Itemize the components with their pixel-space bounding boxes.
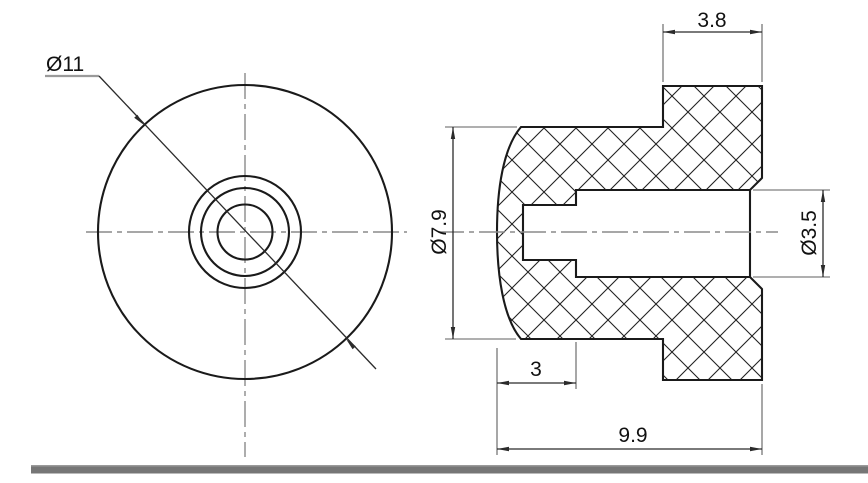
arrowhead (346, 339, 356, 349)
dim-hole-depth-label: 3 (530, 358, 542, 381)
front-view-centerlines (86, 73, 407, 457)
bottom-bar-body (31, 467, 868, 474)
dim-hole-diameter-label: Ø3.5 (798, 210, 821, 256)
arrowhead (451, 327, 455, 339)
engineering-drawing: Ø11 (0, 0, 868, 483)
arrowhead (821, 190, 825, 202)
arrowhead (134, 115, 144, 125)
section-view: 3.8 Ø7.9 Ø3.5 3 9.9 (428, 9, 830, 455)
arrowhead (663, 30, 675, 34)
bottom-bar-highlight (31, 465, 868, 467)
arrowhead (750, 447, 762, 451)
dim-outer-diameter: Ø11 (45, 53, 376, 369)
arrowhead (821, 265, 825, 277)
section-material-hatch (497, 86, 762, 380)
dim-outer-diameter-label: Ø11 (46, 53, 84, 76)
arrowhead (451, 127, 455, 139)
dim-body-diameter-label: Ø7.9 (428, 209, 451, 255)
drawing-page: Ø11 (0, 0, 868, 483)
bottom-bar (31, 465, 868, 474)
dim-flange-width-label: 3.8 (697, 9, 726, 32)
arrowhead (564, 381, 576, 385)
arrowhead (497, 381, 509, 385)
arrowhead (750, 30, 762, 34)
dim-overall-length-label: 9.9 (618, 424, 647, 447)
front-view: Ø11 (45, 53, 407, 457)
arrowhead (497, 447, 509, 451)
